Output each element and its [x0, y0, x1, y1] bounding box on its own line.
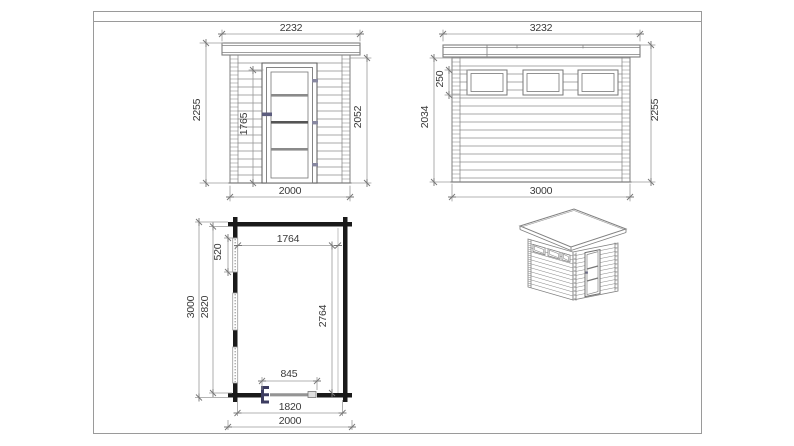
dim-side-overall-height: 2255 [649, 98, 661, 121]
front-elevation-view: 2232 2255 1765 2052 2000 [191, 22, 371, 201]
side-roof [443, 45, 640, 57]
shed-technical-drawing: 2232 2255 1765 2052 2000 [0, 0, 794, 446]
plan-windows [233, 238, 238, 383]
door-hinge [312, 79, 318, 82]
dim-front-wall-height: 2052 [352, 105, 364, 128]
iso-walls [528, 239, 618, 301]
door-hinge [312, 163, 318, 166]
door-glazing-bar [271, 121, 308, 124]
plan-door-hinge [263, 388, 270, 403]
dim-plan-inner-width: 1820 [279, 401, 302, 413]
dim-side-base-length: 3000 [530, 185, 553, 197]
dim-front-door-height: 1765 [238, 112, 250, 135]
front-door [262, 60, 318, 183]
door-glazing-bar [271, 148, 308, 151]
isometric-view [520, 209, 626, 301]
dim-front-overall-height: 2255 [191, 98, 203, 121]
side-elevation-view: 3232 250 2034 2255 3000 [419, 22, 661, 201]
side-windows [467, 70, 618, 95]
dim-plan-outer-width: 2000 [279, 415, 302, 427]
door-glazing-bar [271, 94, 308, 97]
dim-plan-interior-width: 1764 [277, 233, 300, 245]
dim-plan-outer-depth: 3000 [185, 295, 197, 318]
door-handle [262, 113, 272, 117]
dim-plan-inner-depth: 2820 [199, 295, 211, 318]
dim-front-base-width: 2000 [279, 185, 302, 197]
dim-side-window-height: 250 [434, 70, 446, 87]
dim-plan-interior-depth: 2764 [317, 304, 329, 327]
front-roof [222, 43, 360, 55]
dim-front-roof-width: 2232 [280, 22, 303, 34]
iso-details [586, 272, 588, 274]
blueprint-canvas: 2232 2255 1765 2052 2000 [0, 0, 794, 446]
dim-side-wall-height: 2034 [419, 105, 431, 128]
door-hinge [312, 121, 318, 124]
iso-door-handle [586, 272, 588, 274]
dim-side-roof-length: 3232 [530, 22, 553, 34]
dim-plan-door-width: 845 [281, 368, 298, 380]
dim-plan-window-length: 520 [212, 243, 224, 260]
floor-plan-view: 1764 520 3000 2820 2764 845 1820 2000 [185, 217, 352, 430]
plan-door [263, 388, 317, 403]
plan-door-latch [308, 392, 316, 398]
